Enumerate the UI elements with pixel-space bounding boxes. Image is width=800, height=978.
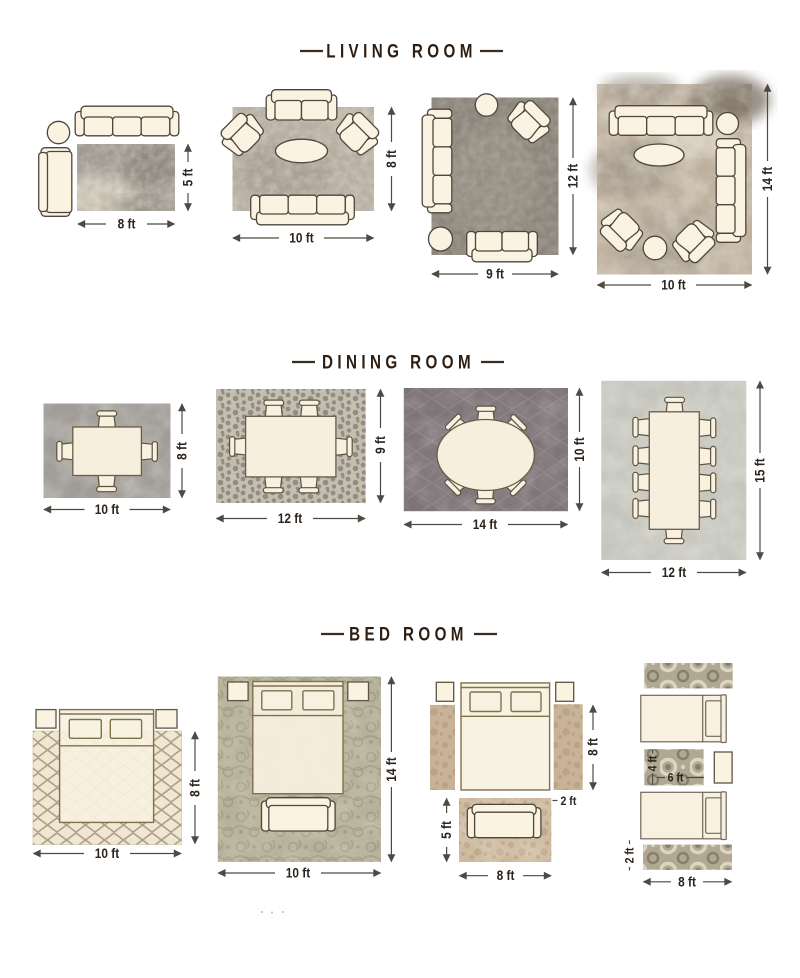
- svg-text:2 ft: 2 ft: [624, 847, 637, 863]
- svg-text:10 ft: 10 ft: [661, 277, 686, 293]
- svg-text:9 ft: 9 ft: [372, 435, 388, 454]
- svg-text:8 ft: 8 ft: [678, 874, 697, 890]
- svg-text:BED ROOM: BED ROOM: [349, 623, 468, 645]
- svg-text:10 ft: 10 ft: [95, 501, 120, 517]
- svg-text:10 ft: 10 ft: [95, 845, 120, 861]
- svg-text:9 ft: 9 ft: [486, 266, 505, 282]
- svg-text:8 ft: 8 ft: [187, 778, 203, 797]
- svg-text:14 ft: 14 ft: [473, 516, 498, 532]
- svg-text:8 ft: 8 ft: [497, 867, 516, 883]
- svg-text:5 ft: 5 ft: [180, 168, 196, 187]
- svg-text:15 ft: 15 ft: [752, 458, 768, 483]
- svg-text:LIVING ROOM: LIVING ROOM: [326, 40, 476, 62]
- svg-text:8 ft: 8 ft: [118, 216, 137, 232]
- svg-text:14 ft: 14 ft: [759, 166, 775, 191]
- svg-text:12 ft: 12 ft: [278, 510, 303, 526]
- svg-text:12 ft: 12 ft: [662, 564, 687, 580]
- svg-text:8 ft: 8 ft: [174, 441, 190, 460]
- svg-text:14 ft: 14 ft: [383, 757, 399, 782]
- svg-text:8 ft: 8 ft: [585, 737, 601, 756]
- svg-text:10 ft: 10 ft: [571, 437, 587, 462]
- svg-text:4 ft: 4 ft: [647, 755, 660, 771]
- svg-text:2 ft: 2 ft: [561, 795, 577, 808]
- svg-text:12 ft: 12 ft: [565, 163, 581, 188]
- svg-text:10 ft: 10 ft: [289, 230, 314, 246]
- svg-text:6 ft: 6 ft: [668, 772, 684, 785]
- svg-text:8 ft: 8 ft: [383, 149, 399, 168]
- svg-text:5 ft: 5 ft: [438, 820, 454, 839]
- svg-text:DINING ROOM: DINING ROOM: [322, 351, 475, 373]
- svg-text:10 ft: 10 ft: [286, 865, 311, 881]
